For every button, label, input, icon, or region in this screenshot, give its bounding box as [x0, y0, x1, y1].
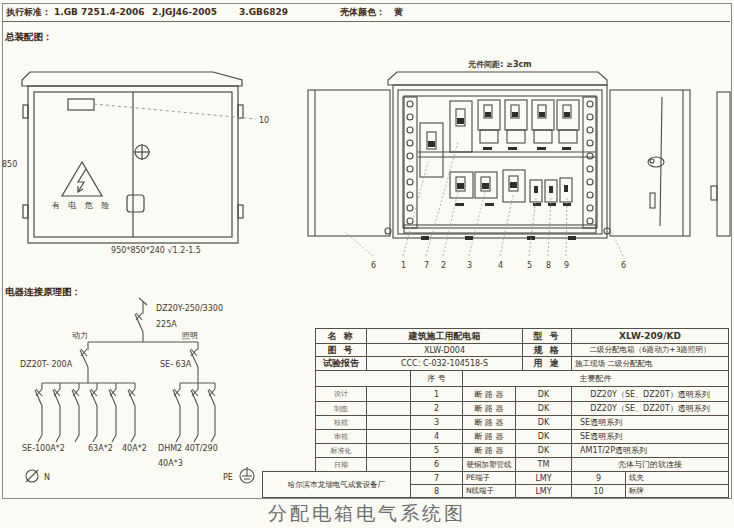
assembly-section-title: 总装配图：	[5, 31, 53, 44]
row-no: 3	[410, 415, 463, 430]
sign-label: 设计	[315, 386, 367, 402]
row-desc: SE透明系列	[571, 429, 729, 444]
item-numbers: 6 1 7 2 3 4 5 8 9 6	[371, 261, 626, 270]
standard-1: 1.GB 7251.4-2006	[54, 3, 145, 21]
row-desc: DZ20Y（SE、DZ20T）透明系列	[571, 401, 729, 416]
cabinet-front-view: 10 有 电 危 险 850 950*850*240 √1.2-1.5	[0, 55, 300, 283]
standard-3: 3.GB6829	[239, 3, 288, 21]
leader-label: 10	[259, 116, 269, 125]
lightning-bolt-icon	[78, 169, 86, 192]
row-name: PE端子	[462, 471, 516, 485]
row-code: DK	[515, 415, 572, 430]
sign-label: 日期	[315, 457, 367, 472]
spec-value: 二级分配电箱（6路动力+3路照明）	[571, 343, 729, 357]
row-no: 4	[410, 429, 463, 444]
report-label: 试验报告	[315, 356, 367, 371]
row-code: DK	[515, 443, 572, 458]
cabinet-roof	[22, 72, 242, 86]
side-panel	[717, 92, 730, 236]
blank-cell	[366, 443, 411, 458]
power-branch-label: 动力	[72, 331, 88, 340]
cabinet-roof	[388, 72, 607, 85]
row-name2: 标牌	[625, 484, 729, 498]
svg-text:5: 5	[527, 261, 532, 270]
item-leader-lines	[345, 142, 623, 256]
side-panel-latch	[711, 186, 717, 200]
clearance-note: 元件间距: ≥3cm	[467, 60, 531, 69]
pe-earth-symbol	[240, 467, 254, 483]
lighting-outputs-1: DHM2 40T/290	[158, 444, 218, 453]
row-name: 断 路 器	[462, 386, 516, 402]
svg-text:6: 6	[621, 261, 626, 270]
height-dimension: 850	[2, 160, 17, 169]
blank-cell	[366, 386, 411, 402]
row-no2: 9	[571, 471, 626, 485]
row-desc: SE透明系列	[571, 415, 729, 430]
main-breaker-symbol	[135, 313, 143, 342]
svg-text:8: 8	[546, 261, 551, 270]
door-latch-rod	[660, 97, 662, 226]
fig-value: XLW-D004	[366, 343, 523, 357]
size-note: 950*850*240 √1.2-1.5	[111, 246, 201, 255]
blank-cell	[366, 401, 411, 416]
left-door-open	[308, 90, 390, 236]
hinge	[238, 205, 243, 218]
cabinet-open-view: 元件间距: ≥3cm	[300, 50, 734, 278]
model-label: 型 号	[522, 328, 572, 344]
row-name: 硬铜加塑管线	[462, 457, 516, 472]
sign-label: 校核	[315, 415, 367, 430]
power-outputs-3: 40A*2	[122, 444, 147, 453]
row-name: 断 路 器	[462, 401, 516, 416]
row-code: DK	[515, 386, 572, 402]
row-desc: 壳体与门的软连接	[571, 457, 729, 472]
pe-label: PE	[223, 473, 233, 482]
power-outputs-1: SE-100A*2	[22, 444, 65, 453]
row-no2: 10	[571, 484, 626, 498]
row-code: LMY	[515, 471, 572, 485]
use-value: 施工现场 二级分配配电	[571, 356, 729, 371]
neutral-label: N	[44, 473, 50, 482]
use-label: 用 途	[522, 356, 572, 371]
row-desc: AM1T/2P透明系列	[571, 443, 729, 458]
wiring-schematic: DZ20Y-250/3300 225A 动力 照明 DZ20T- 200A SE…	[0, 283, 300, 497]
main-breaker-rating: 225A	[156, 320, 177, 329]
svg-text:7: 7	[424, 261, 429, 270]
name-label: 名 称	[315, 328, 367, 344]
svg-text:3: 3	[467, 261, 472, 270]
svg-text:2: 2	[441, 261, 446, 270]
standards-bar: 执行标准： 1.GB 7251.4-2006 2.JGJ46-2005 3.GB…	[2, 3, 730, 22]
fig-label: 图 号	[315, 343, 367, 357]
door-window	[127, 195, 144, 212]
factory-name: 哈尔滨市龙瑞电气成套设备厂	[262, 471, 411, 498]
row-code: LMY	[515, 484, 572, 498]
svg-text:9: 9	[564, 261, 569, 270]
row-name: 断 路 器	[462, 443, 516, 458]
drawing-caption: 分配电箱电气系统图	[0, 501, 734, 527]
lighting-breaker-model: SE- 63A	[160, 360, 192, 369]
blank-cell	[315, 370, 411, 387]
power-breaker-model: DZ20T- 200A	[20, 360, 73, 369]
row-name: 断 路 器	[462, 429, 516, 444]
row-code: TM	[515, 457, 572, 472]
blank-cell	[366, 415, 411, 430]
hinge	[238, 105, 243, 118]
wiring-duct-left	[403, 97, 417, 228]
wiring-duct-right	[583, 97, 597, 228]
row-no: 7	[410, 471, 463, 485]
hinge	[23, 105, 28, 118]
spec-label: 规 格	[522, 343, 572, 357]
power-feeder-symbols	[35, 383, 135, 442]
shell-color-label: 壳体颜色：	[340, 3, 385, 21]
report-value: CCC: C-032-104518-S	[366, 356, 523, 371]
drawing-sheet-page: 执行标准： 1.GB 7251.4-2006 2.JGJ46-2005 3.GB…	[0, 0, 734, 528]
row-no: 8	[410, 484, 463, 498]
row-no: 2	[410, 401, 463, 416]
danger-triangle-icon	[62, 162, 102, 196]
row-code: DK	[515, 429, 572, 444]
parts-header: 主要配件	[462, 370, 729, 387]
row-no: 1	[410, 386, 463, 402]
main-breaker-model: DZ20Y-250/3300	[156, 304, 223, 313]
blank-cell	[366, 457, 411, 472]
lighting-outputs-2: 40A*3	[158, 459, 183, 468]
row-name2: 线夹	[625, 471, 729, 485]
danger-text: 有 电 危 险	[52, 201, 113, 210]
row-no: 6	[410, 457, 463, 472]
serial-header: 序 号	[410, 370, 463, 387]
row-desc: DZ20Y（SE、DZ20T）透明系列	[571, 386, 729, 402]
sign-label: 审核	[315, 429, 367, 444]
model-value: XLW-209/KD	[571, 328, 729, 344]
latch-slot	[650, 193, 655, 208]
svg-text:6: 6	[371, 261, 376, 270]
hinge	[23, 205, 28, 218]
shell-color-value: 黄	[394, 3, 403, 21]
power-outputs-2: 63A*2	[88, 444, 113, 453]
right-door-open	[610, 90, 690, 236]
power-branch-breaker-symbol	[80, 349, 88, 383]
lighting-branch-label: 照明	[182, 331, 198, 340]
row-code: DK	[515, 401, 572, 416]
svg-text:4: 4	[498, 261, 503, 270]
name-value: 建筑施工用配电箱	[366, 328, 523, 344]
svg-text:1: 1	[401, 261, 406, 270]
sign-label: 标准化	[315, 443, 367, 458]
standard-2: 2.JGJ46-2005	[152, 3, 217, 21]
sign-label: 制图	[315, 401, 367, 416]
lighting-feeder-symbols	[173, 383, 215, 442]
blank-cell	[366, 429, 411, 444]
row-name: 断 路 器	[462, 415, 516, 430]
top-feeder-breakers	[478, 100, 579, 143]
standards-label: 执行标准：	[6, 3, 51, 21]
main-breaker	[420, 123, 443, 177]
nameplate	[68, 99, 94, 110]
row-name: N线端子	[462, 484, 516, 498]
row-no: 5	[410, 443, 463, 458]
